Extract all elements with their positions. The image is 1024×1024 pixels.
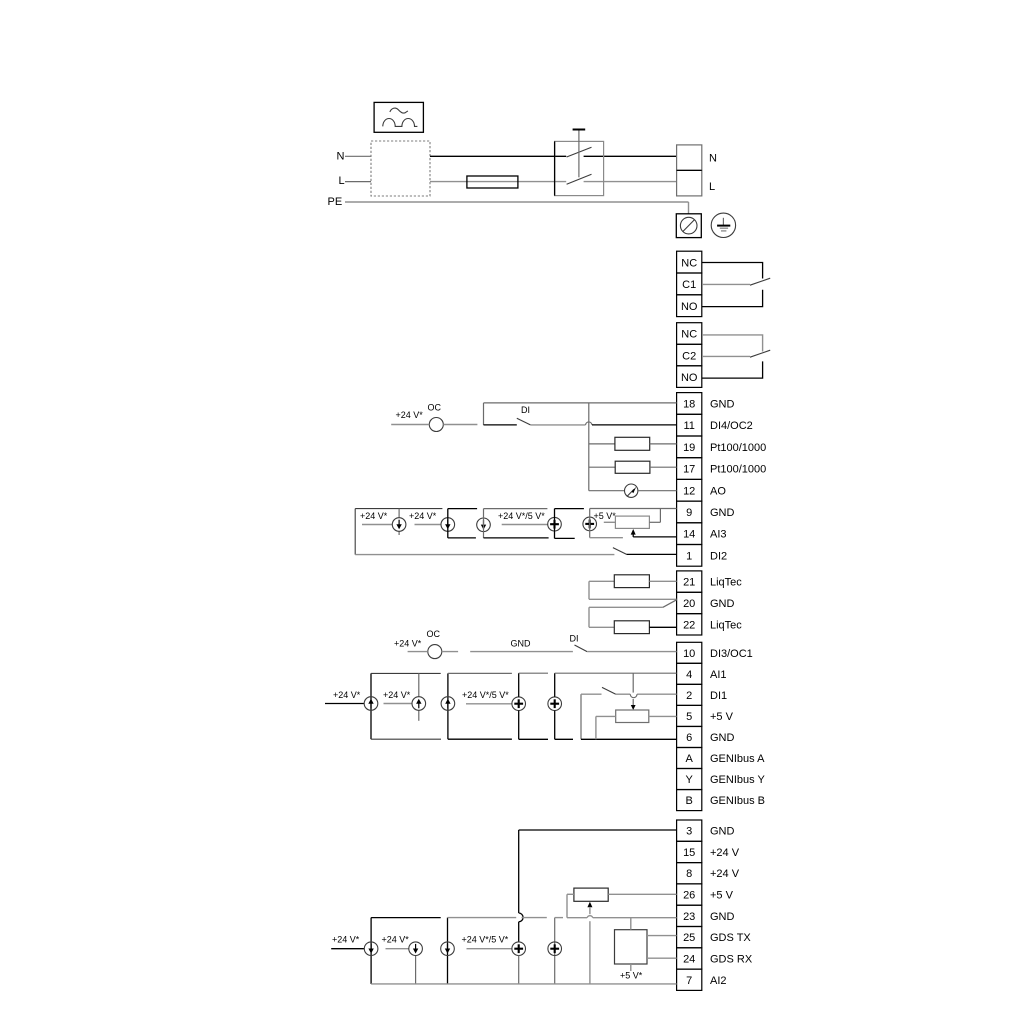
- svg-text:Y: Y: [686, 774, 694, 786]
- svg-text:NC: NC: [681, 329, 697, 341]
- svg-text:DI1: DI1: [710, 690, 727, 702]
- svg-text:DI4/OC2: DI4/OC2: [710, 420, 753, 432]
- svg-text:2: 2: [686, 690, 692, 702]
- svg-text:GND: GND: [710, 598, 735, 610]
- svg-text:19: 19: [683, 442, 695, 454]
- svg-text:7: 7: [686, 975, 692, 987]
- svg-text:AI1: AI1: [710, 669, 727, 681]
- svg-text:Pt100/1000: Pt100/1000: [710, 464, 766, 476]
- svg-text:AI3: AI3: [710, 529, 727, 541]
- svg-text:24: 24: [683, 953, 695, 965]
- svg-text:+24 V*: +24 V*: [332, 935, 360, 945]
- svg-text:GENIbus A: GENIbus A: [710, 753, 765, 765]
- svg-text:NO: NO: [681, 372, 698, 384]
- svg-text:GND: GND: [511, 639, 532, 649]
- svg-text:+24 V*/5 V*: +24 V*/5 V*: [462, 690, 509, 700]
- svg-text:6: 6: [686, 732, 692, 744]
- svg-text:GND: GND: [710, 911, 735, 923]
- svg-text:DI2: DI2: [710, 550, 727, 562]
- svg-text:20: 20: [683, 598, 695, 610]
- svg-text:+24 V*: +24 V*: [382, 935, 410, 945]
- svg-text:15: 15: [683, 847, 695, 859]
- svg-text:AI2: AI2: [710, 975, 727, 987]
- svg-text:+24 V*: +24 V*: [396, 410, 424, 420]
- svg-text:+24 V: +24 V: [710, 847, 740, 859]
- svg-text:DI3/OC1: DI3/OC1: [710, 648, 753, 660]
- svg-text:+5 V*: +5 V*: [620, 971, 643, 981]
- svg-text:5: 5: [686, 711, 692, 723]
- svg-text:AO: AO: [710, 485, 726, 497]
- svg-text:+24 V*: +24 V*: [409, 511, 437, 521]
- svg-text:1: 1: [686, 550, 692, 562]
- svg-text:C1: C1: [682, 279, 696, 291]
- svg-text:18: 18: [683, 399, 695, 411]
- svg-text:B: B: [686, 795, 693, 807]
- svg-text:L: L: [339, 175, 345, 187]
- svg-text:22: 22: [683, 619, 695, 631]
- svg-text:LiqTec: LiqTec: [710, 619, 742, 631]
- svg-text:DI: DI: [570, 634, 579, 644]
- svg-text:+24 V*/5 V*: +24 V*/5 V*: [462, 935, 509, 945]
- svg-text:11: 11: [683, 420, 694, 432]
- svg-text:9: 9: [686, 507, 692, 519]
- svg-text:OC: OC: [428, 403, 442, 413]
- svg-text:PE: PE: [328, 196, 343, 208]
- svg-text:GENIbus Y: GENIbus Y: [710, 774, 765, 786]
- svg-text:GND: GND: [710, 399, 735, 411]
- svg-text:+24 V*: +24 V*: [333, 690, 361, 700]
- svg-text:Pt100/1000: Pt100/1000: [710, 442, 766, 454]
- svg-text:+5 V: +5 V: [710, 711, 734, 723]
- svg-text:3: 3: [686, 826, 692, 838]
- svg-text:C2: C2: [682, 350, 696, 362]
- svg-text:DI: DI: [521, 405, 530, 415]
- svg-text:+24 V: +24 V: [710, 868, 740, 880]
- svg-text:L: L: [709, 181, 715, 193]
- svg-text:+24 V*: +24 V*: [383, 690, 411, 700]
- svg-text:GND: GND: [710, 826, 735, 838]
- svg-text:25: 25: [683, 932, 695, 944]
- svg-text:GDS RX: GDS RX: [710, 953, 753, 965]
- svg-text:21: 21: [683, 577, 695, 589]
- svg-text:N: N: [709, 153, 717, 165]
- svg-text:GENIbus B: GENIbus B: [710, 795, 765, 807]
- svg-text:23: 23: [683, 911, 695, 923]
- svg-text:+24 V*/5 V*: +24 V*/5 V*: [498, 511, 545, 521]
- svg-text:14: 14: [683, 529, 695, 541]
- svg-text:GND: GND: [710, 507, 735, 519]
- svg-text:8: 8: [686, 868, 692, 880]
- svg-text:N: N: [337, 151, 345, 163]
- svg-text:26: 26: [683, 890, 695, 902]
- svg-text:OC: OC: [427, 629, 441, 639]
- svg-text:GND: GND: [710, 732, 735, 744]
- svg-text:NO: NO: [681, 301, 698, 313]
- svg-text:4: 4: [686, 669, 692, 681]
- svg-text:LiqTec: LiqTec: [710, 577, 742, 589]
- svg-text:12: 12: [683, 485, 695, 497]
- svg-text:GDS TX: GDS TX: [710, 932, 751, 944]
- svg-text:NC: NC: [681, 257, 697, 269]
- svg-text:+5 V: +5 V: [710, 890, 734, 902]
- svg-text:17: 17: [683, 464, 695, 476]
- svg-text:A: A: [686, 753, 694, 765]
- svg-text:+24 V*: +24 V*: [394, 639, 422, 649]
- svg-text:+24 V*: +24 V*: [360, 511, 388, 521]
- svg-text:+5 V*: +5 V*: [594, 511, 617, 521]
- svg-text:10: 10: [683, 648, 695, 660]
